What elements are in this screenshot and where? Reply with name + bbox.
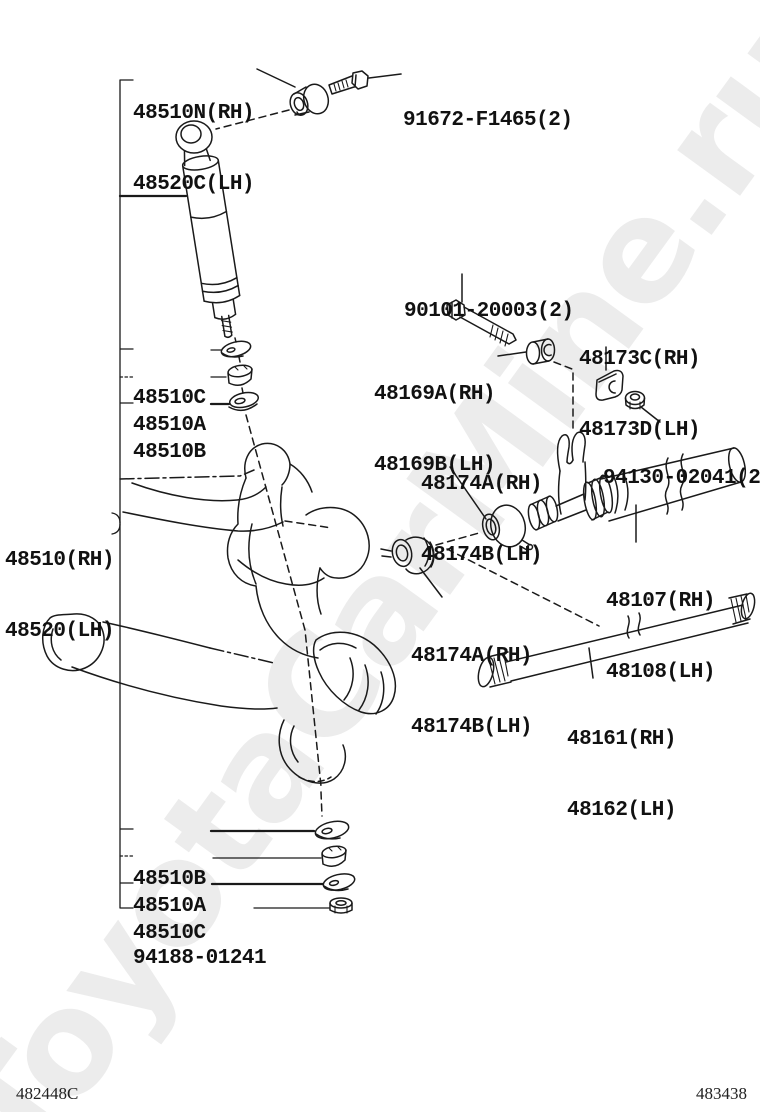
callout-torque-arm-boot-upper: 48174A(RH) 48174B(LH) xyxy=(421,426,542,614)
callout-lock-nut: 94188-01241 xyxy=(133,900,266,1018)
lower-washer-stack xyxy=(314,818,357,913)
upper-washer-stack xyxy=(220,339,260,411)
callout-retainer-upper: 48510B xyxy=(133,394,206,512)
callout-shock-absorber: 48510(RH) 48520(LH) xyxy=(5,502,114,690)
callout-torque-arm-boot-lower: 48174A(RH) 48174B(LH) xyxy=(411,598,532,786)
callout-anchor-arm-nut: 94130-02041(2) xyxy=(603,420,760,538)
figure-code-left: 482448C xyxy=(16,1084,78,1104)
callout-torsion-bar-spring: 48161(RH) 48162(LH) xyxy=(567,681,676,869)
parts-diagram-page: ToyotaCarMine.ru xyxy=(0,0,760,1112)
callout-shock-cushion-kit: 48510N(RH) 48520C(LH) xyxy=(133,55,254,243)
callout-bolt-with-washer: 91672-F1465(2) xyxy=(403,62,572,180)
figure-code-right: 483438 xyxy=(696,1084,747,1104)
bolt-91672 xyxy=(329,71,368,94)
